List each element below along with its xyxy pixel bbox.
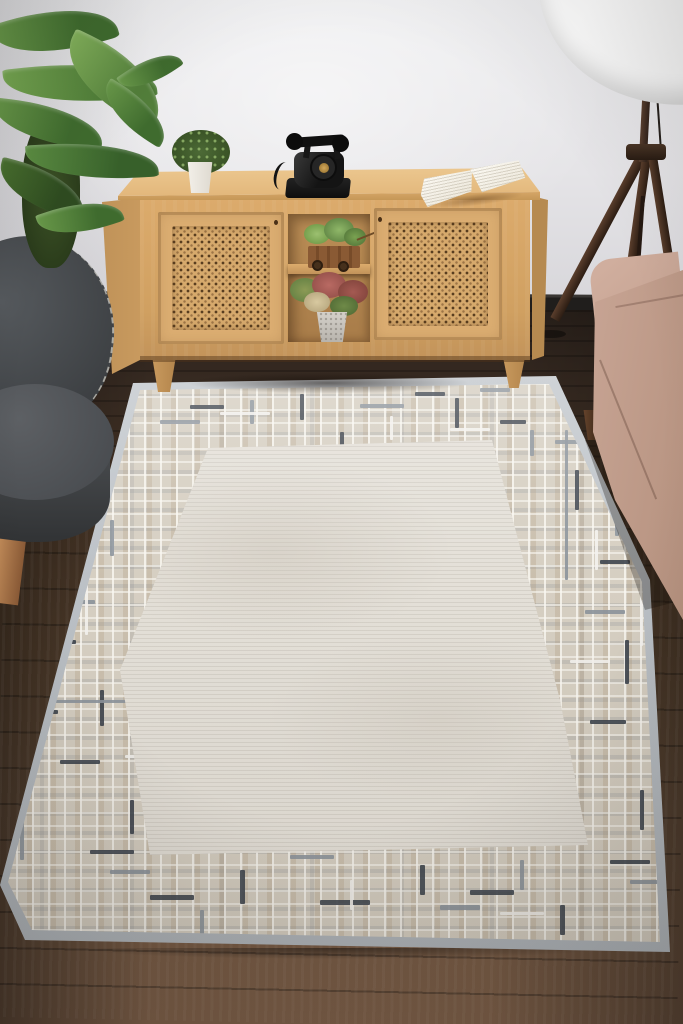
living-room-photo: [0, 0, 683, 1024]
shelf-plant-leaf: [304, 292, 330, 312]
keyhole-icon: [274, 220, 278, 225]
keyhole-icon: [378, 217, 382, 222]
houseplant-leaf: [0, 97, 106, 150]
cart-wheel: [312, 260, 323, 271]
houseplant: [0, 0, 210, 310]
sideboard-bottom-rail: [140, 356, 530, 362]
cane-door-right: [374, 208, 502, 340]
sideboard-shadow: [126, 368, 530, 398]
sofa: [585, 240, 683, 620]
cane-webbing: [388, 222, 488, 326]
cart-wheel: [338, 261, 349, 272]
